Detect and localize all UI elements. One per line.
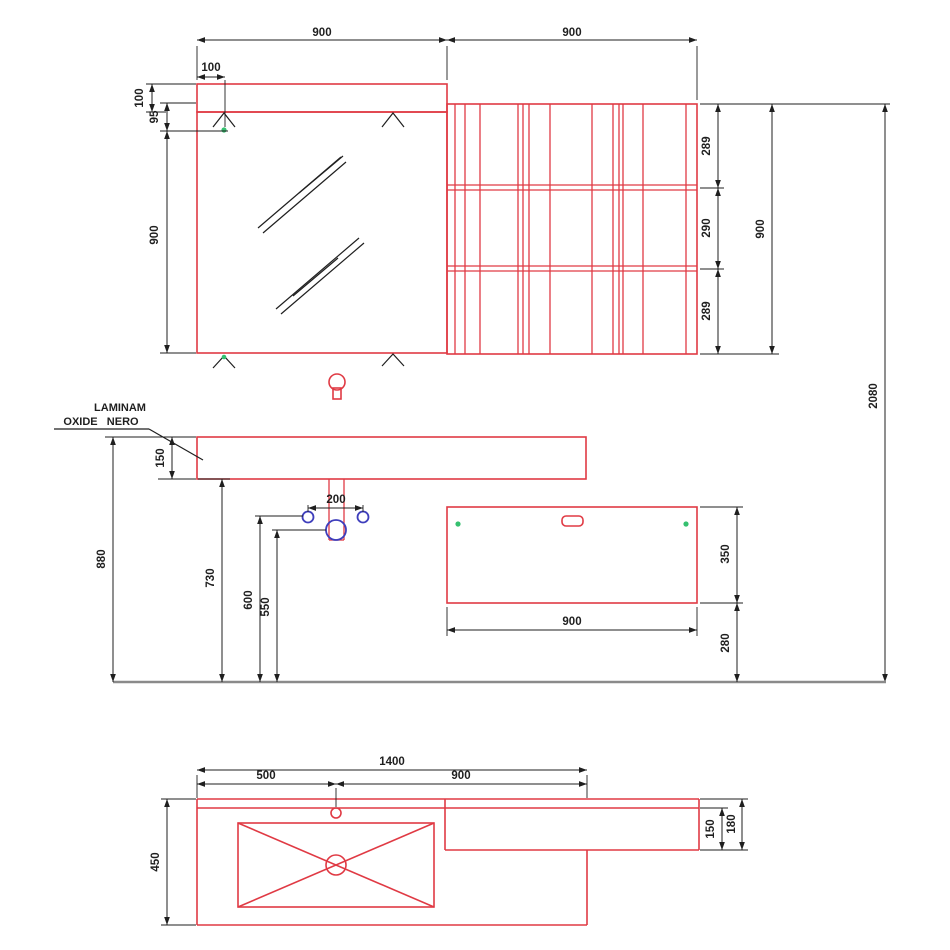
dim-cabinet-height: 350 bbox=[720, 544, 732, 563]
front-elevation: LAMINAM OXIDE NERO 150 bbox=[54, 374, 886, 682]
dim-countertop-top-height: 880 bbox=[96, 549, 108, 568]
dim-mirror-height: 900 bbox=[149, 225, 161, 244]
dim-countertop-depth: 450 bbox=[150, 852, 162, 871]
mirror bbox=[197, 112, 447, 353]
fixing-point-bottom-marker bbox=[222, 355, 227, 360]
clip-bottom-right-icon bbox=[382, 354, 404, 366]
dim-water-supply-height: 600 bbox=[243, 590, 255, 609]
cabinet-front bbox=[447, 507, 697, 603]
mirror-lamp-band bbox=[197, 84, 447, 112]
cabinet-fixing-right-marker bbox=[683, 521, 688, 526]
dim-shelf-spacing-bottom: 289 bbox=[701, 301, 713, 320]
cad-drawing-sheet: 900 900 100 100 95 900 bbox=[0, 0, 950, 950]
bathroom-vanity-technical-drawing: 900 900 100 100 95 900 bbox=[0, 0, 950, 950]
material-name-line1: LAMINAM bbox=[94, 402, 146, 414]
material-name-line2: OXIDE NERO bbox=[63, 416, 139, 428]
dim-countertop-thickness: 150 bbox=[155, 448, 167, 467]
top-elevation: 900 900 100 100 95 900 bbox=[134, 27, 890, 682]
plan-dimensions: 1400 500 900 450 150 180 bbox=[150, 756, 748, 925]
water-supply-left bbox=[303, 512, 314, 523]
plan-outline bbox=[197, 799, 699, 925]
keyhole-fixing-icon bbox=[329, 374, 345, 399]
plan-view: 1400 500 900 450 150 180 bbox=[150, 756, 748, 925]
dim-water-supply-spacing: 200 bbox=[326, 494, 345, 506]
dim-lamp-band-height: 100 bbox=[134, 88, 146, 107]
dim-clip-inset: 100 bbox=[201, 62, 220, 74]
dim-countertop-width: 1400 bbox=[379, 756, 405, 768]
countertop bbox=[197, 437, 586, 479]
dim-overall-height: 2080 bbox=[868, 383, 880, 409]
dim-shelf-unit-height: 900 bbox=[755, 219, 767, 238]
dim-cabinet-clearance: 280 bbox=[720, 633, 732, 652]
dim-basin-to-right: 900 bbox=[451, 770, 470, 782]
dim-side-shelf-total-depth: 180 bbox=[726, 814, 738, 833]
mirror-clips bbox=[213, 113, 404, 368]
mirror-reflection-hatch bbox=[258, 156, 364, 314]
dim-cabinet-width: 900 bbox=[562, 616, 581, 628]
shelf-unit-vertical-panels bbox=[455, 104, 686, 354]
clip-top-left-icon bbox=[213, 113, 235, 127]
basin-plan bbox=[238, 808, 434, 907]
shelf-unit-frame bbox=[447, 104, 697, 354]
water-supply-right bbox=[358, 512, 369, 523]
material-label: LAMINAM OXIDE NERO bbox=[54, 402, 203, 460]
shelf-unit bbox=[447, 104, 697, 354]
dim-drain-height: 550 bbox=[260, 597, 272, 616]
front-dimensions: 150 880 730 600 550 200 350 280 bbox=[96, 437, 743, 682]
shelves bbox=[447, 185, 697, 271]
dim-side-shelf-inner-depth: 150 bbox=[705, 819, 717, 838]
dim-shelf-spacing-middle: 290 bbox=[701, 218, 713, 237]
wall-cabinet bbox=[447, 507, 697, 603]
plumbing bbox=[303, 479, 369, 540]
dim-countertop-bottom-height: 730 bbox=[205, 568, 217, 587]
dim-shelf-unit-width: 900 bbox=[562, 27, 581, 39]
fixing-point-top-marker bbox=[221, 127, 226, 132]
dim-shelf-spacing-top: 289 bbox=[701, 136, 713, 155]
cabinet-fixing-left-marker bbox=[455, 521, 460, 526]
faucet-hole bbox=[331, 808, 341, 818]
dim-basin-from-left: 500 bbox=[256, 770, 275, 782]
cabinet-handle-slot bbox=[562, 516, 583, 526]
dim-mirror-width: 900 bbox=[312, 27, 331, 39]
dim-clip-offset: 95 bbox=[149, 110, 161, 123]
clip-top-right-icon bbox=[382, 113, 404, 127]
